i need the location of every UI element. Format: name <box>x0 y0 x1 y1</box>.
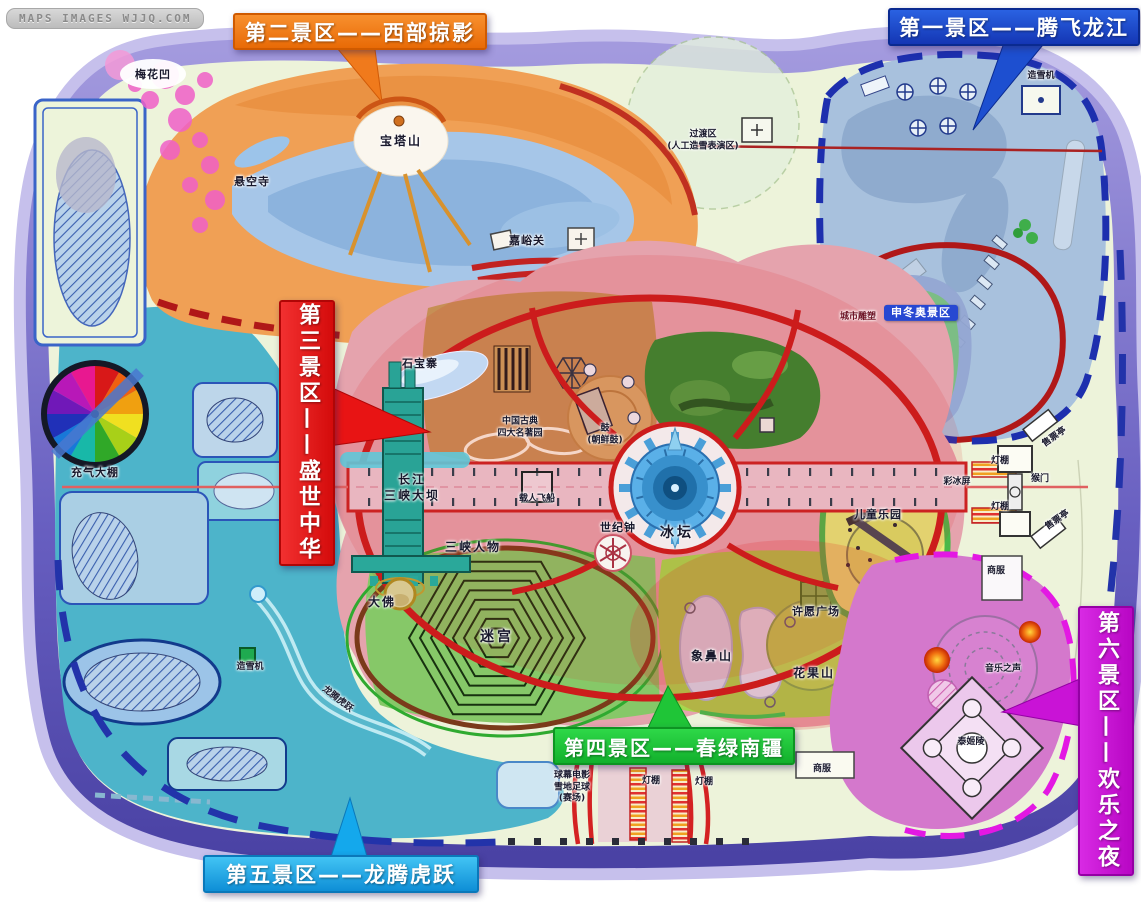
monkey-gate <box>998 446 1032 472</box>
park-map: MAPS IMAGES WJJQ.COM 第一景区——腾飞龙江 第二景区——西部… <box>0 0 1141 902</box>
callout-zone-6: 第六景区——欢乐之夜 <box>1078 606 1134 876</box>
callout-zone-2: 第二景区——西部掠影 <box>233 13 487 50</box>
lamp-shed <box>630 768 646 840</box>
shops-building <box>796 752 854 778</box>
callout-zone-1: 第一景区——腾飞龙江 <box>888 8 1140 46</box>
callout-zone-4: 第四景区——春绿南疆 <box>553 727 795 765</box>
callout-zone-5: 第五景区——龙腾虎跃 <box>203 855 479 893</box>
torch-glow <box>924 647 950 673</box>
ice-rink <box>497 762 559 808</box>
spaceship-pad <box>522 472 552 502</box>
map-artwork <box>0 0 1141 902</box>
shops-building <box>982 556 1022 600</box>
lamp-shed <box>672 770 688 842</box>
callout-zone-3: 第三景区——盛世中华 <box>279 300 335 566</box>
snow-machine <box>240 648 255 663</box>
ice-altar <box>611 424 739 552</box>
watermark: MAPS IMAGES WJJQ.COM <box>6 8 204 29</box>
century-bell <box>595 535 631 571</box>
